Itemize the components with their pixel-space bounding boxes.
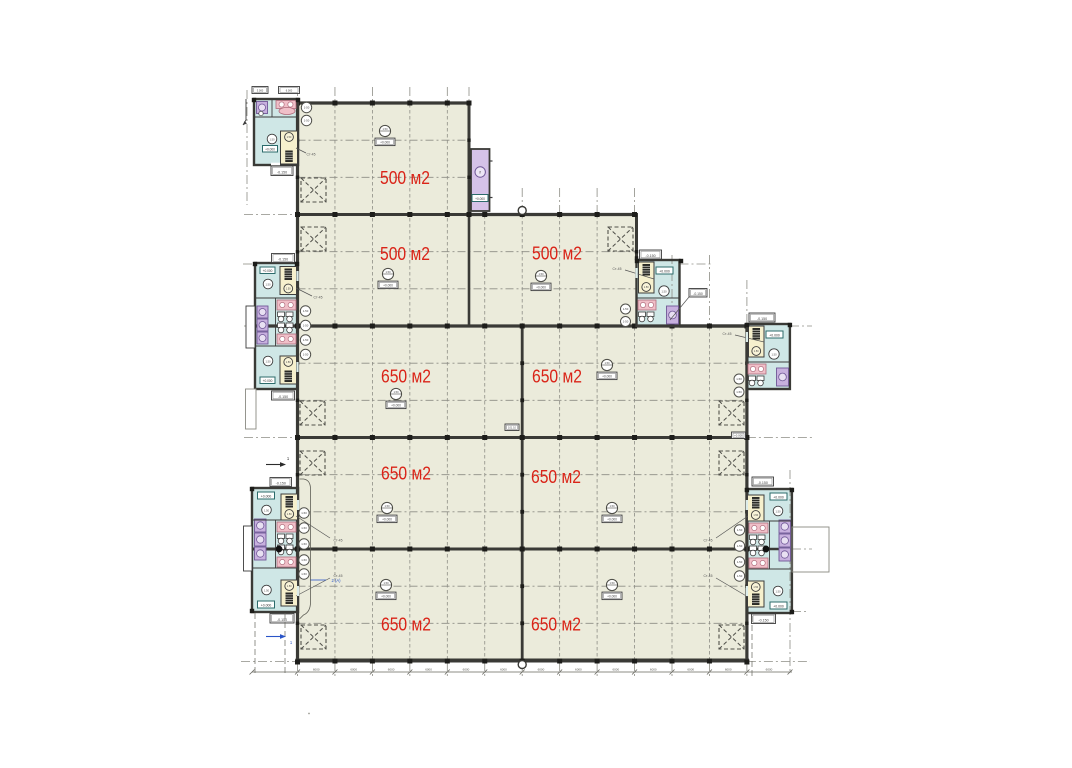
svg-text:1.50: 1.50 [753, 514, 758, 517]
svg-text:+0.000: +0.000 [769, 334, 780, 338]
svg-text:+0.000: +0.000 [659, 270, 670, 274]
svg-text:1-50: 1-50 [737, 528, 743, 532]
svg-text:1-50: 1-50 [303, 353, 309, 357]
svg-text:1-50: 1-50 [301, 511, 307, 515]
svg-text:6000: 6000 [463, 668, 470, 672]
svg-text:6000: 6000 [538, 668, 545, 672]
svg-text:1-50: 1-50 [301, 572, 307, 576]
svg-text:1.50: 1.50 [661, 290, 667, 294]
svg-text:1.50: 1.50 [609, 581, 615, 585]
svg-text:2 (A): 2 (A) [331, 578, 341, 583]
svg-text:500 м2: 500 м2 [532, 243, 582, 264]
svg-text:Ст-45: Ст-45 [613, 267, 622, 271]
svg-text:1-50: 1-50 [623, 320, 629, 324]
svg-text:6000: 6000 [388, 668, 395, 672]
svg-text:6000: 6000 [612, 668, 619, 672]
svg-text:500 м2: 500 м2 [380, 167, 430, 188]
svg-text:+0.000: +0.000 [536, 285, 546, 289]
svg-text:1.50: 1.50 [609, 504, 615, 508]
svg-text:500 м2: 500 м2 [380, 243, 430, 264]
svg-text:650 м2: 650 м2 [531, 466, 581, 487]
svg-text:+0.000: +0.000 [602, 374, 612, 378]
svg-text:+0.000: +0.000 [773, 605, 784, 609]
svg-text:+0.000: +0.000 [381, 594, 391, 598]
svg-text:-0.150: -0.150 [693, 292, 703, 296]
svg-text:1-50: 1-50 [304, 106, 310, 110]
svg-text:+0.000: +0.000 [391, 403, 401, 407]
svg-text:6000: 6000 [425, 668, 432, 672]
svg-text:1.50: 1.50 [384, 504, 390, 508]
svg-text:1.50: 1.50 [286, 361, 291, 364]
svg-text:1.50: 1.50 [264, 589, 270, 593]
svg-text:-0.150: -0.150 [278, 257, 288, 261]
svg-text:6000: 6000 [725, 668, 732, 672]
svg-text:6000: 6000 [650, 668, 657, 672]
svg-text:-0.150: -0.150 [277, 618, 287, 622]
svg-text:6.000: 6.000 [286, 88, 293, 92]
svg-text:Ст-45: Ст-45 [314, 296, 323, 300]
svg-text:1.50: 1.50 [644, 286, 649, 289]
svg-text:Ст-45: Ст-45 [704, 574, 713, 578]
svg-text:1.50: 1.50 [393, 390, 399, 394]
svg-text:1-50: 1-50 [301, 558, 307, 562]
svg-text:1.50: 1.50 [264, 509, 270, 513]
svg-text:+0.000: +0.000 [261, 495, 272, 499]
svg-text:1.50: 1.50 [775, 590, 781, 594]
svg-text:+0.000: +0.000 [383, 283, 393, 287]
svg-text:1.50: 1.50 [385, 270, 391, 274]
svg-text:650 м2: 650 м2 [531, 614, 581, 635]
svg-text:3.000: 3.000 [257, 88, 264, 92]
svg-text:6000: 6000 [575, 668, 582, 672]
svg-text:Ст-45: Ст-45 [704, 539, 713, 543]
svg-text:-0.150: -0.150 [757, 317, 767, 321]
svg-text:1.50: 1.50 [775, 510, 781, 514]
svg-text:1.50: 1.50 [753, 586, 758, 589]
svg-text:6000: 6000 [687, 668, 694, 672]
svg-text:+0.000: +0.000 [382, 517, 392, 521]
svg-text:+0.000: +0.000 [607, 517, 617, 521]
svg-text:101.10: 101.10 [508, 425, 516, 429]
svg-text:1-50: 1-50 [737, 574, 743, 578]
svg-text:+0.000: +0.000 [263, 379, 273, 383]
svg-text:1.50: 1.50 [286, 288, 291, 291]
svg-text:+0.000: +0.000 [380, 140, 390, 144]
svg-text:6000: 6000 [500, 668, 507, 672]
svg-text:+0.000: +0.000 [265, 148, 275, 152]
svg-text:1-50: 1-50 [737, 560, 743, 564]
svg-text:1.50: 1.50 [538, 272, 544, 276]
svg-text:1.50: 1.50 [265, 360, 271, 364]
svg-text:-0.150: -0.150 [758, 481, 768, 485]
svg-text:1.50: 1.50 [383, 581, 389, 585]
svg-text:+0.000: +0.000 [607, 594, 617, 598]
svg-text:1-50: 1-50 [736, 377, 742, 381]
svg-text:1.50: 1.50 [604, 361, 610, 365]
svg-text:1.50: 1.50 [265, 283, 271, 287]
svg-text:+0.000: +0.000 [734, 433, 743, 437]
svg-text:Ст-45: Ст-45 [723, 332, 732, 336]
svg-text:+0.000: +0.000 [475, 197, 485, 201]
svg-text:1.50: 1.50 [269, 138, 275, 142]
svg-text:1-50: 1-50 [303, 309, 309, 313]
svg-text:-0.150: -0.150 [277, 170, 287, 174]
svg-text:-0.150: -0.150 [278, 395, 288, 399]
svg-text:650 м2: 650 м2 [532, 366, 582, 387]
svg-text:650 м2: 650 м2 [381, 463, 431, 484]
svg-text:1-50: 1-50 [303, 338, 309, 342]
svg-text:650 м2: 650 м2 [381, 366, 431, 387]
svg-text:6000: 6000 [350, 668, 357, 672]
svg-text:-0.150: -0.150 [276, 481, 286, 485]
svg-text:650 м2: 650 м2 [381, 614, 431, 635]
svg-text:Ст-45: Ст-45 [307, 153, 316, 157]
svg-text:1.50: 1.50 [287, 585, 292, 588]
svg-text:1.50: 1.50 [287, 136, 292, 139]
svg-text:1-50: 1-50 [301, 526, 307, 530]
svg-text:+0.000: +0.000 [261, 604, 272, 608]
svg-text:+0.000: +0.000 [263, 269, 273, 273]
svg-text:Ст-45: Ст-45 [334, 539, 343, 543]
svg-text:1-50: 1-50 [623, 307, 629, 311]
svg-text:1.50: 1.50 [754, 350, 759, 353]
svg-text:1.50: 1.50 [382, 127, 388, 131]
svg-text:1-50: 1-50 [301, 542, 307, 546]
svg-text:1-50: 1-50 [304, 119, 310, 123]
svg-text:6000: 6000 [313, 668, 320, 672]
svg-text:1-50: 1-50 [737, 544, 743, 548]
svg-text:-0.150: -0.150 [645, 254, 655, 258]
svg-text:1.50: 1.50 [771, 353, 777, 357]
svg-text:Л: Л [479, 171, 481, 175]
svg-text:1-50: 1-50 [736, 390, 742, 394]
svg-text:+0.000: +0.000 [773, 496, 784, 500]
svg-text:-0.150: -0.150 [758, 618, 768, 622]
svg-text:6000: 6000 [766, 668, 773, 672]
svg-text:1-50: 1-50 [303, 324, 309, 328]
svg-text:1.50: 1.50 [287, 513, 292, 516]
